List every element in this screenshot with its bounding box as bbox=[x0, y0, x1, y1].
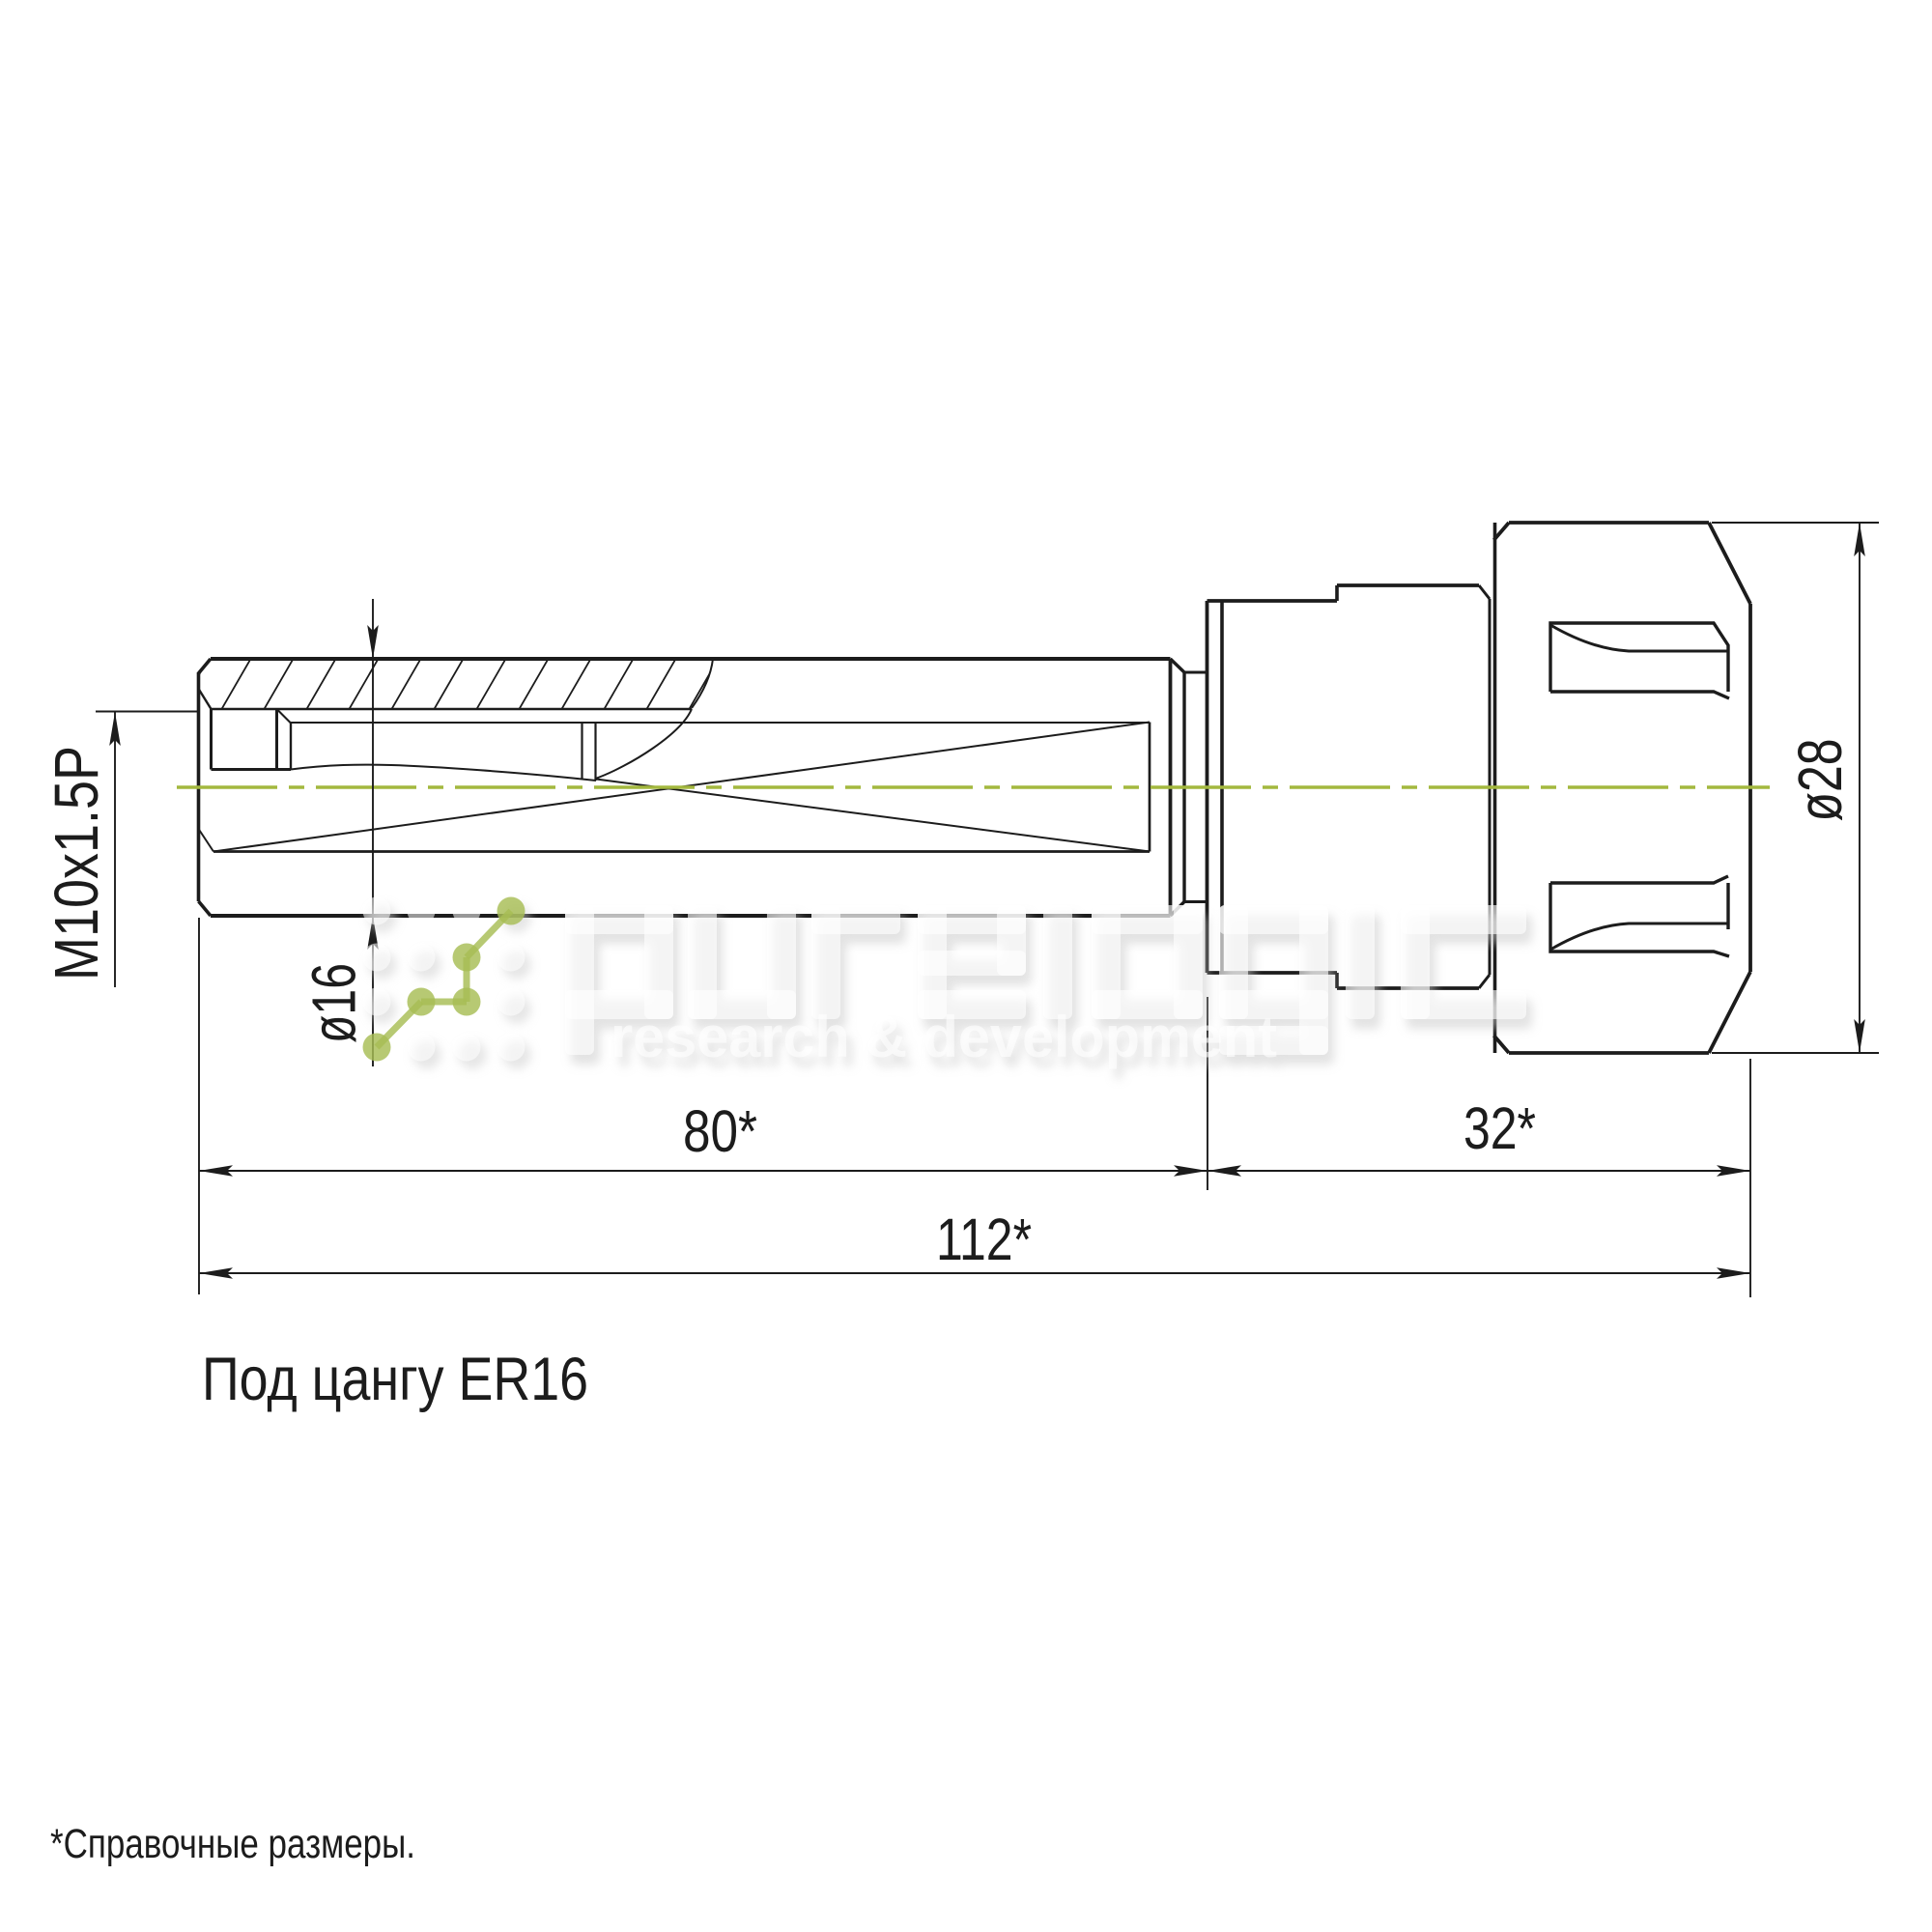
svg-text:80*: 80* bbox=[683, 1098, 757, 1164]
svg-text:112*: 112* bbox=[936, 1207, 1032, 1272]
svg-text:research & development: research & development bbox=[611, 1005, 1277, 1069]
svg-text:Под цангу ER16: Под цангу ER16 bbox=[202, 1346, 588, 1413]
svg-text:*Справочные размеры.: *Справочные размеры. bbox=[50, 1822, 415, 1867]
svg-text:32*: 32* bbox=[1463, 1095, 1536, 1161]
svg-text:ø28: ø28 bbox=[1785, 739, 1855, 822]
svg-text:ø16: ø16 bbox=[299, 963, 369, 1043]
svg-text:M10x1.5P: M10x1.5P bbox=[42, 746, 111, 980]
